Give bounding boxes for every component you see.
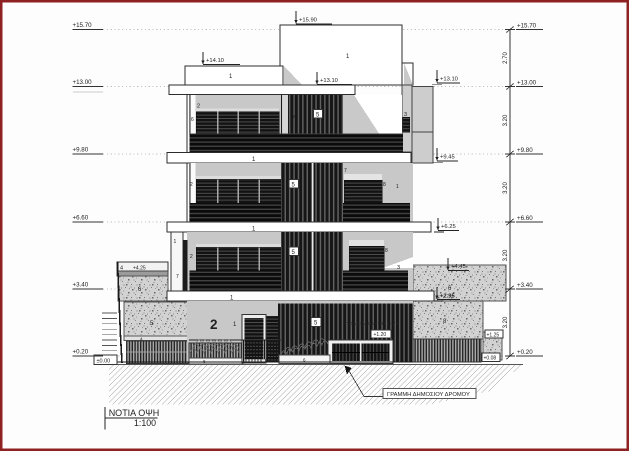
svg-text:7: 7: [344, 168, 347, 174]
svg-text:+4.45: +4.45: [451, 264, 466, 270]
svg-text:+6.60: +6.60: [73, 215, 89, 222]
svg-text:+13.00: +13.00: [73, 79, 93, 86]
svg-text:3.20: 3.20: [503, 182, 509, 194]
svg-text:2.70: 2.70: [503, 52, 509, 64]
svg-text:+15.70: +15.70: [73, 22, 93, 29]
svg-text:+13.10: +13.10: [440, 77, 458, 83]
svg-text:+4.25: +4.25: [133, 266, 146, 272]
svg-text:+1.25: +1.25: [487, 333, 500, 339]
svg-text:6: 6: [191, 117, 194, 123]
svg-text:8: 8: [383, 182, 386, 188]
svg-text:2: 2: [190, 254, 193, 260]
svg-text:+6.60: +6.60: [517, 215, 533, 222]
svg-text:+2.95: +2.95: [440, 294, 455, 300]
svg-text:+0.08: +0.08: [484, 356, 497, 362]
svg-text:2: 2: [190, 182, 193, 188]
svg-text:ΠΟΛΕΟΔΟΜΙΚΗ ΟΨΗ: ΠΟΛΕΟΔΟΜΙΚΗ ΟΨΗ: [345, 321, 400, 327]
svg-text:+0.20: +0.20: [73, 349, 89, 356]
svg-text:3: 3: [397, 265, 400, 271]
svg-text:+3.40: +3.40: [73, 282, 89, 289]
svg-text:+9.45: +9.45: [440, 155, 455, 161]
svg-text:±0.00: ±0.00: [97, 359, 111, 365]
svg-text:+1.20: +1.20: [374, 332, 387, 338]
svg-text:1: 1: [174, 239, 177, 245]
svg-text:2: 2: [210, 317, 218, 332]
svg-text:3.20: 3.20: [503, 316, 509, 328]
svg-text:3.20: 3.20: [503, 114, 509, 126]
svg-text:ΝΟΤΙΑ ΟΨΗ: ΝΟΤΙΑ ΟΨΗ: [109, 408, 160, 418]
svg-text:1:100: 1:100: [134, 418, 156, 428]
svg-text:+13.10: +13.10: [320, 78, 338, 84]
svg-text:+9.80: +9.80: [73, 147, 89, 154]
svg-text:ΓΡΑΜΜΗ ΔΗΜΟΣΙΟΥ ΔΡΟΜΟΥ: ΓΡΑΜΜΗ ΔΗΜΟΣΙΟΥ ΔΡΟΜΟΥ: [387, 392, 470, 398]
svg-text:+15.70: +15.70: [517, 23, 537, 30]
svg-text:+3.40: +3.40: [517, 282, 533, 289]
svg-text:1: 1: [396, 184, 399, 190]
svg-text:2: 2: [197, 104, 200, 110]
svg-text:+9.80: +9.80: [517, 147, 533, 154]
svg-text:+15.90: +15.90: [299, 18, 317, 24]
svg-text:8: 8: [385, 248, 388, 254]
svg-text:7: 7: [176, 274, 179, 280]
svg-text:4: 4: [120, 266, 123, 272]
svg-text:+6.25: +6.25: [441, 224, 456, 230]
svg-text:+0.20: +0.20: [517, 349, 533, 356]
svg-text:+14.10: +14.10: [206, 58, 224, 64]
svg-text:3.20: 3.20: [503, 249, 509, 261]
svg-text:+13.00: +13.00: [517, 80, 537, 87]
